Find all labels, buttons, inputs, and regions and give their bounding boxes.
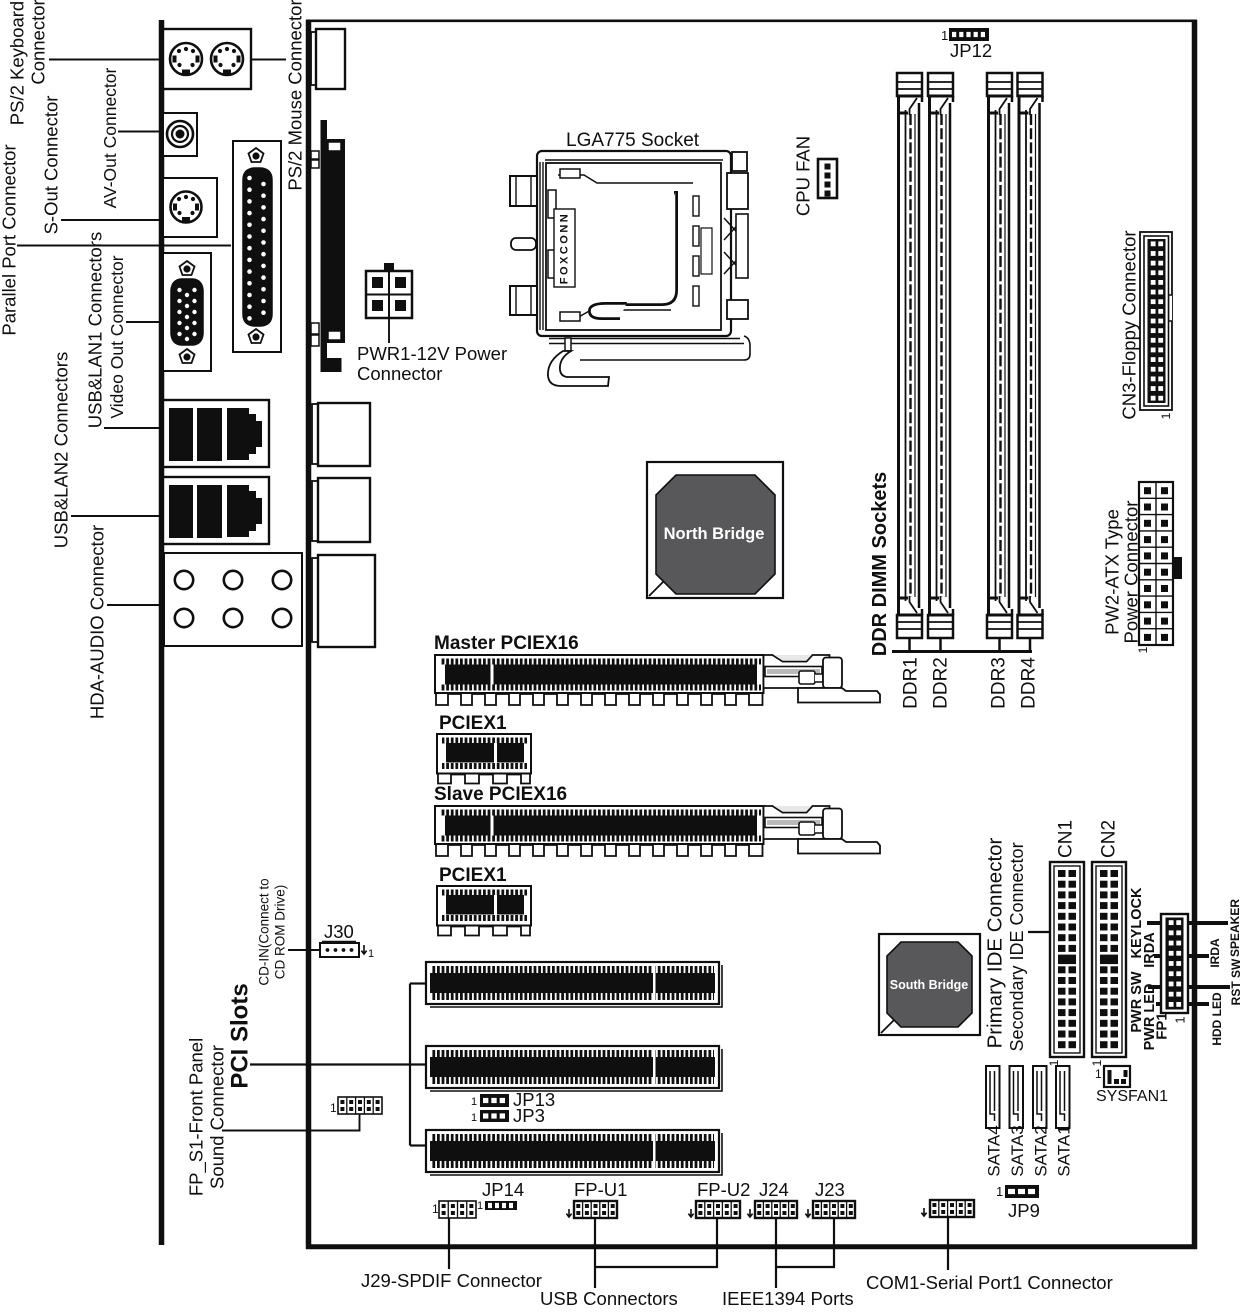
svg-text:1: 1 xyxy=(1090,1059,1104,1066)
svg-text:1: 1 xyxy=(996,1184,1003,1199)
svg-text:1: 1 xyxy=(471,1096,477,1108)
svg-text:JP9: JP9 xyxy=(1008,1200,1040,1221)
svg-text:PCIEX1: PCIEX1 xyxy=(439,713,507,734)
svg-text:1: 1 xyxy=(941,28,948,43)
svg-text:1: 1 xyxy=(1173,1016,1188,1023)
svg-text:LGA775 Socket: LGA775 Socket xyxy=(566,130,700,151)
svg-text:COM1-Serial Port1 Connector: COM1-Serial Port1 Connector xyxy=(866,1272,1113,1293)
svg-text:J24: J24 xyxy=(759,1179,789,1200)
svg-text:1: 1 xyxy=(368,948,374,960)
svg-text:Sound Connector: Sound Connector xyxy=(207,1045,228,1189)
svg-text:PWR1-12V Power: PWR1-12V Power xyxy=(357,343,507,364)
svg-text:CN3-Floppy Connector: CN3-Floppy Connector xyxy=(1119,230,1140,419)
svg-text:IRDA: IRDA xyxy=(1208,938,1222,968)
svg-text:SATA3: SATA3 xyxy=(1008,1125,1027,1176)
svg-text:USB&LAN1 Connectors: USB&LAN1 Connectors xyxy=(85,232,106,428)
svg-text:USB Connectors: USB Connectors xyxy=(540,1288,678,1307)
svg-text:J23: J23 xyxy=(815,1179,845,1200)
svg-text:SPEAKER: SPEAKER xyxy=(1228,899,1242,957)
svg-text:CD ROM Drive): CD ROM Drive) xyxy=(273,885,288,980)
svg-text:SYSFAN1: SYSFAN1 xyxy=(1096,1088,1168,1105)
svg-text:1: 1 xyxy=(330,1101,337,1115)
svg-text:HDD LED: HDD LED xyxy=(1210,992,1224,1046)
svg-text:1: 1 xyxy=(1136,646,1150,653)
svg-text:J30: J30 xyxy=(324,921,354,942)
svg-text:1: 1 xyxy=(1095,1067,1102,1081)
svg-text:South Bridge: South Bridge xyxy=(890,978,969,992)
svg-text:SATA2: SATA2 xyxy=(1032,1125,1051,1176)
svg-text:Video Out Connector: Video Out Connector xyxy=(107,255,127,418)
svg-text:DDR4: DDR4 xyxy=(1019,657,1040,709)
svg-text:DDR DIMM Sockets: DDR DIMM Sockets xyxy=(869,472,891,656)
svg-text:1: 1 xyxy=(471,1112,477,1124)
svg-text:S-Out Connector: S-Out Connector xyxy=(41,96,62,235)
svg-text:FP_S1-Front Panel: FP_S1-Front Panel xyxy=(186,1038,208,1196)
svg-text:CD-IN(Connect to: CD-IN(Connect to xyxy=(257,878,272,985)
svg-text:1: 1 xyxy=(477,1200,483,1212)
svg-text:IEEE1394 Ports: IEEE1394 Ports xyxy=(722,1288,854,1307)
svg-text:DDR1: DDR1 xyxy=(901,657,922,709)
svg-text:JP3: JP3 xyxy=(513,1105,545,1126)
svg-text:USB&LAN2 Connectors: USB&LAN2 Connectors xyxy=(51,352,72,548)
svg-text:1: 1 xyxy=(1159,412,1173,419)
svg-text:DDR3: DDR3 xyxy=(989,657,1010,709)
svg-text:SATA4: SATA4 xyxy=(985,1125,1004,1176)
svg-text:JP14: JP14 xyxy=(482,1179,524,1200)
svg-text:North Bridge: North Bridge xyxy=(664,525,765,543)
svg-text:J29-SPDIF Connector: J29-SPDIF Connector xyxy=(361,1270,542,1291)
svg-text:Connector: Connector xyxy=(357,363,442,384)
svg-text:PWR LED: PWR LED xyxy=(1142,984,1158,1051)
svg-text:AV-Out Connector: AV-Out Connector xyxy=(100,67,120,208)
svg-text:RST SW: RST SW xyxy=(1229,958,1242,1005)
svg-text:PCI Slots: PCI Slots xyxy=(227,983,254,1088)
svg-text:PCIEX1: PCIEX1 xyxy=(439,865,507,886)
svg-text:DDR2: DDR2 xyxy=(931,657,952,709)
svg-text:Connector: Connector xyxy=(28,0,49,85)
svg-text:Master PCIEX16: Master PCIEX16 xyxy=(434,633,579,654)
svg-text:Primary IDE Connector: Primary IDE Connector xyxy=(984,837,1007,1048)
svg-text:SATA1: SATA1 xyxy=(1055,1125,1074,1176)
svg-text:FP-U1: FP-U1 xyxy=(574,1179,627,1200)
svg-text:PS/2 Mouse Connector: PS/2 Mouse Connector xyxy=(285,0,306,191)
svg-text:IRDA: IRDA xyxy=(1142,932,1158,968)
svg-text:FP-U2: FP-U2 xyxy=(697,1179,750,1200)
svg-text:JP12: JP12 xyxy=(950,40,992,61)
svg-text:FOXCONN: FOXCONN xyxy=(559,212,571,285)
svg-text:Parallel Port Connector: Parallel Port Connector xyxy=(0,144,20,335)
svg-text:PW2-ATX Type: PW2-ATX Type xyxy=(1102,509,1123,635)
svg-text:Secondary IDE Connector: Secondary IDE Connector xyxy=(1007,842,1027,1051)
svg-text:CN1: CN1 xyxy=(1056,820,1077,858)
svg-text:Slave PCIEX16: Slave PCIEX16 xyxy=(434,784,567,805)
svg-text:CPU FAN: CPU FAN xyxy=(793,136,814,216)
svg-text:PS/2 Keyboard: PS/2 Keyboard xyxy=(7,1,28,125)
svg-text:HDA-AUDIO Connector: HDA-AUDIO Connector xyxy=(87,525,108,719)
svg-text:1: 1 xyxy=(432,1202,439,1216)
svg-text:CN2: CN2 xyxy=(1099,820,1120,858)
